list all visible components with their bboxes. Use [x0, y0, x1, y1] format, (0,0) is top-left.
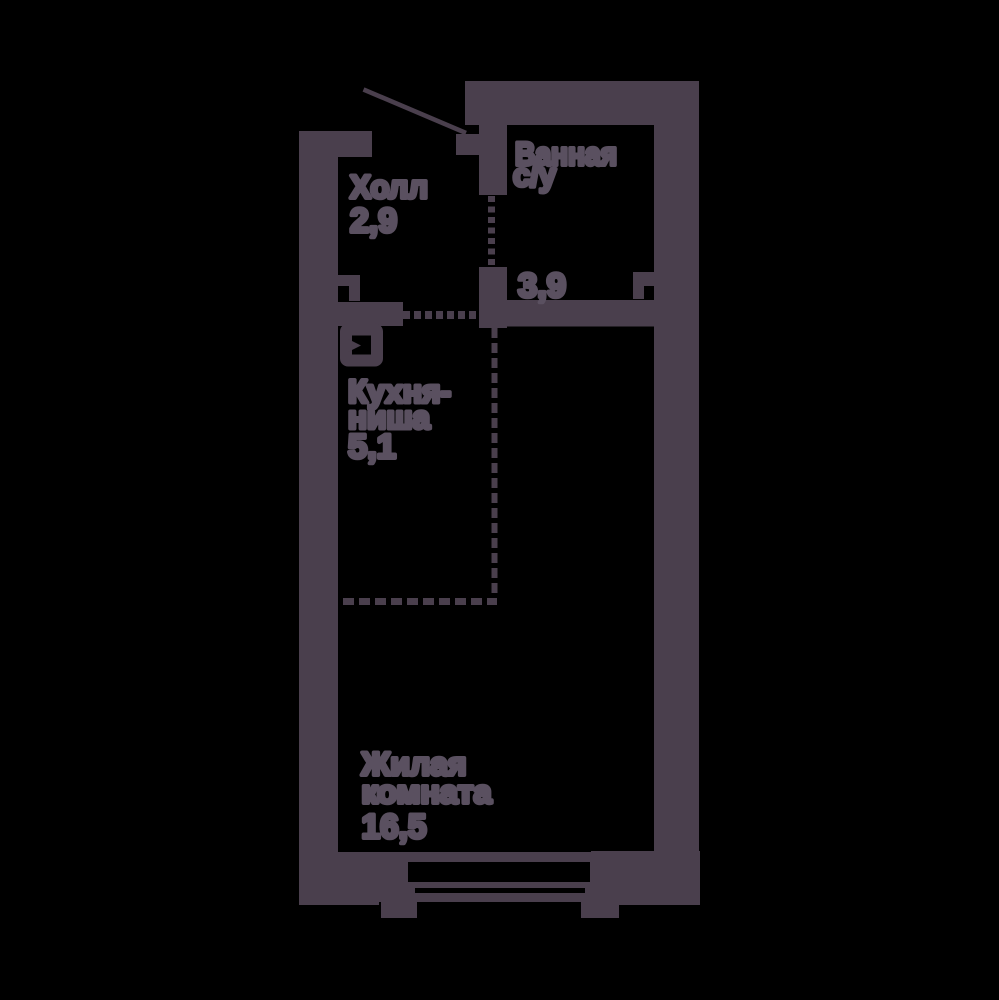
svg-text:3,9: 3,9	[518, 267, 566, 305]
svg-text:2,9: 2,9	[350, 202, 397, 240]
svg-text:комната: комната	[362, 774, 492, 810]
svg-text:5,1: 5,1	[348, 428, 396, 466]
svg-text:Холл: Холл	[350, 169, 428, 205]
svg-text:16,5: 16,5	[362, 808, 427, 846]
svg-text:с/у: с/у	[513, 157, 556, 193]
